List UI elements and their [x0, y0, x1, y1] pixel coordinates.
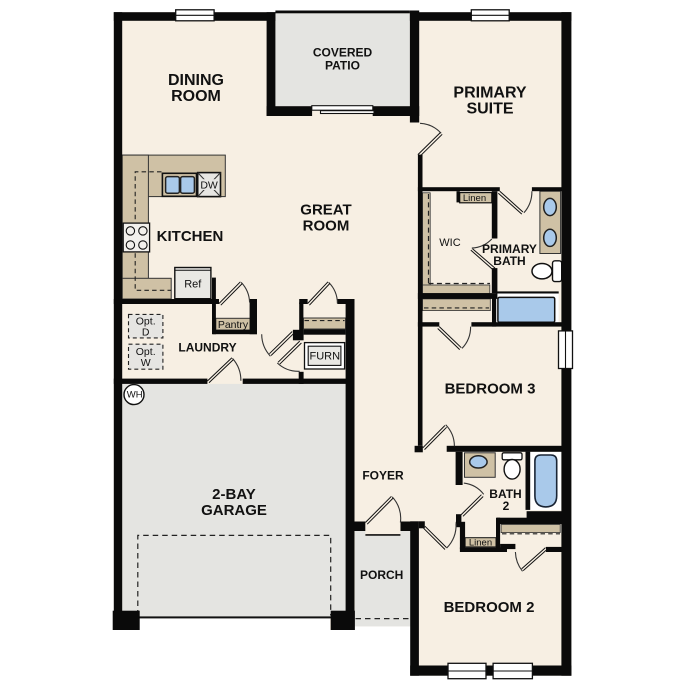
svg-text:BATH: BATH: [493, 254, 525, 268]
svg-text:ROOM: ROOM: [303, 218, 350, 235]
svg-text:SUITE: SUITE: [466, 101, 513, 118]
svg-text:LAUNDRY: LAUNDRY: [178, 341, 236, 355]
svg-text:2: 2: [503, 499, 510, 513]
svg-text:W: W: [141, 357, 151, 369]
svg-text:COVERED: COVERED: [313, 46, 373, 60]
svg-text:BEDROOM 2: BEDROOM 2: [444, 599, 535, 616]
svg-text:BEDROOM 3: BEDROOM 3: [445, 381, 536, 398]
svg-text:WIC: WIC: [439, 237, 460, 249]
svg-text:WH: WH: [127, 390, 143, 401]
svg-text:Pantry: Pantry: [218, 319, 249, 331]
svg-text:GREAT: GREAT: [300, 202, 351, 219]
svg-text:PATIO: PATIO: [325, 59, 360, 73]
svg-text:Linen: Linen: [469, 538, 492, 549]
svg-text:GARAGE: GARAGE: [201, 502, 267, 519]
svg-text:2-BAY: 2-BAY: [212, 486, 256, 503]
svg-text:ROOM: ROOM: [171, 88, 221, 105]
svg-text:PORCH: PORCH: [360, 568, 403, 582]
svg-text:Ref: Ref: [184, 279, 202, 291]
svg-text:FOYER: FOYER: [362, 469, 404, 483]
svg-text:DW: DW: [200, 179, 218, 191]
svg-text:FURN: FURN: [310, 351, 341, 363]
svg-text:Linen: Linen: [463, 193, 486, 204]
svg-text:DINING: DINING: [168, 72, 224, 89]
svg-text:PRIMARY: PRIMARY: [453, 85, 527, 102]
svg-text:KITCHEN: KITCHEN: [157, 228, 224, 245]
svg-text:D: D: [142, 326, 150, 338]
